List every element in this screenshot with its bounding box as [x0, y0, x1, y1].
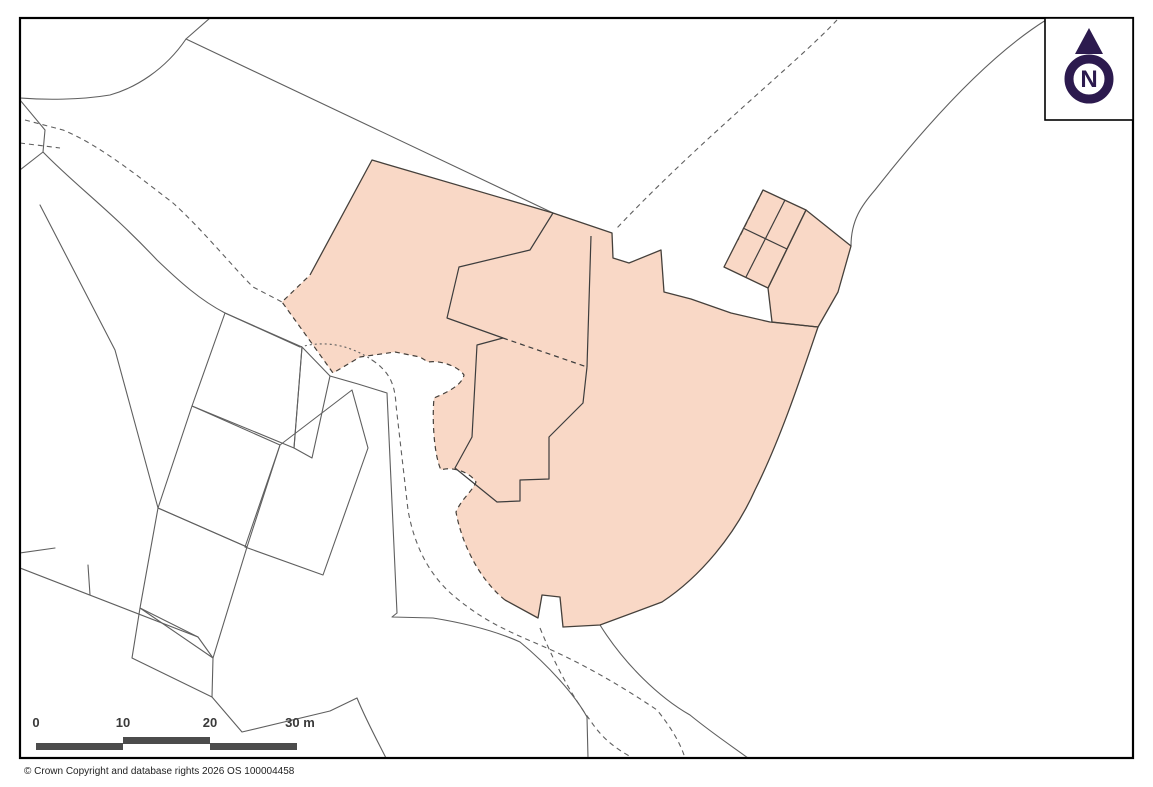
north-label: N [1080, 66, 1097, 93]
scale-label-30m: 30 m [285, 715, 315, 730]
north-arrow: N [1045, 18, 1133, 120]
attribution-text: © Crown Copyright and database rights 20… [24, 766, 295, 777]
map-canvas: N 0 10 20 30 m © Crown Copyright and dat… [0, 0, 1153, 787]
scale-label-20: 20 [203, 715, 217, 730]
map-document: N 0 10 20 30 m © Crown Copyright and dat… [0, 0, 1153, 787]
scale-label-10: 10 [116, 715, 130, 730]
scale-label-0: 0 [32, 715, 39, 730]
